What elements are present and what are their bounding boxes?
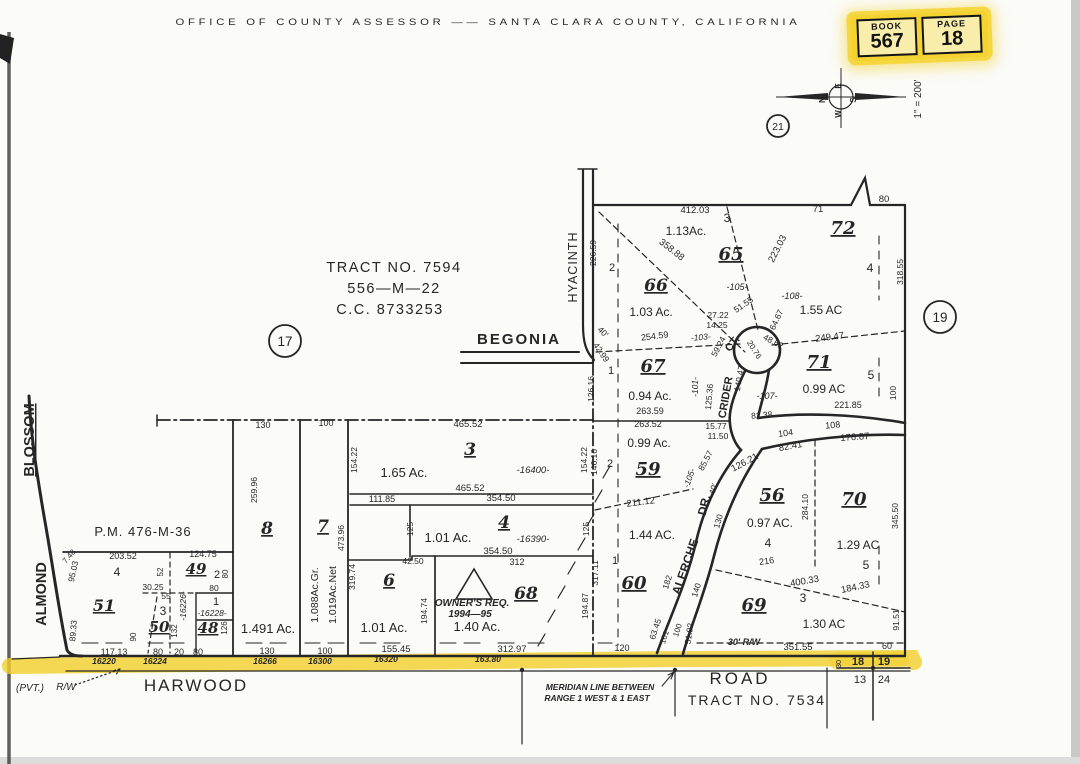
map-label: 80 bbox=[879, 194, 890, 205]
map-label: 16220 bbox=[92, 656, 116, 666]
circled-ref-label: 19 bbox=[932, 310, 947, 325]
map-label: 2 bbox=[609, 262, 615, 274]
map-label: 1.03 Ac. bbox=[629, 305, 672, 319]
map-label: MERIDIAN LINE BETWEEN bbox=[546, 682, 655, 692]
map-label: 126.21 bbox=[729, 451, 760, 474]
map-label: 203.52 bbox=[109, 551, 137, 561]
map-label: 124.75 bbox=[189, 549, 217, 559]
map-label: 51.55 bbox=[732, 294, 755, 315]
map-label: 11.50 bbox=[708, 431, 729, 441]
lot-60: 60 bbox=[621, 573, 647, 594]
map-label: 48.62 bbox=[762, 332, 786, 351]
map-label: 465.52 bbox=[453, 419, 482, 430]
lot-70: 70 bbox=[841, 489, 867, 510]
lot-56: 56 bbox=[759, 485, 785, 506]
map-label: 223.03 bbox=[766, 233, 789, 264]
lot-49: 49 bbox=[186, 560, 207, 578]
circled-ref-label: 21 bbox=[772, 121, 784, 133]
circled-ref-17: 17 bbox=[269, 325, 301, 357]
lot-7: 7 bbox=[317, 517, 329, 537]
map-label: -103- bbox=[690, 331, 711, 343]
map-label: 14.25 bbox=[706, 320, 728, 330]
map-label: 1.01 Ac. bbox=[361, 620, 408, 635]
street-harwood: HARWOOD bbox=[144, 676, 248, 695]
map-label: 2 bbox=[214, 569, 220, 581]
map-label: 465.52 bbox=[455, 483, 484, 494]
map-label: 40' bbox=[596, 324, 611, 339]
assessor-map: 171921 OFFICE OF COUNTY ASSESSOR —— SANT… bbox=[0, 0, 1080, 764]
map-label: 108 bbox=[825, 419, 841, 430]
street-hyacinth: HYACINTH bbox=[566, 232, 580, 303]
map-label: 284.10 bbox=[800, 494, 810, 520]
map-label: 473.96 bbox=[336, 525, 346, 551]
lot-51: 51 bbox=[93, 596, 115, 615]
map-label: -16226- bbox=[178, 591, 188, 620]
map-label: 263.59 bbox=[636, 406, 664, 416]
book-value: 567 bbox=[859, 30, 916, 53]
map-label: 104 bbox=[777, 427, 793, 439]
map-label: 146.16 bbox=[589, 449, 599, 475]
map-label: 1 bbox=[213, 596, 219, 608]
map-label: 354.50 bbox=[483, 546, 512, 557]
map-label: 400.33 bbox=[789, 574, 820, 590]
map-label: 1.65 Ac. bbox=[381, 465, 428, 480]
map-label: 140.47 bbox=[732, 365, 746, 393]
map-label: 42.50 bbox=[402, 556, 424, 566]
map-label: 249.47 bbox=[815, 330, 845, 344]
map-label: 120 bbox=[614, 643, 629, 653]
map-label: 259.96 bbox=[249, 477, 259, 503]
map-label: 254.59 bbox=[640, 329, 669, 342]
map-label: 154.22 bbox=[349, 447, 359, 473]
compass-n: N bbox=[818, 97, 827, 103]
circled-ref-label: 17 bbox=[277, 334, 292, 349]
map-label: C.C. 8733253 bbox=[336, 302, 443, 318]
map-label: 4 bbox=[867, 261, 874, 275]
map-label: 90 bbox=[129, 632, 138, 641]
map-label: 100 bbox=[317, 646, 332, 656]
pm-476-m-36: P.M. 476-M-36 bbox=[94, 524, 191, 539]
map-label: 263.52 bbox=[634, 419, 662, 429]
map-label: -107- bbox=[756, 391, 777, 401]
map-label: -16390- bbox=[517, 534, 550, 545]
page-cell: PAGE 18 bbox=[921, 15, 982, 55]
street-road: ROAD bbox=[709, 669, 770, 688]
lot-72: 72 bbox=[830, 218, 855, 239]
page-value: 18 bbox=[924, 28, 981, 51]
map-label: -105- bbox=[726, 282, 747, 292]
street-begonia: BEGONIA bbox=[477, 331, 561, 348]
map-label: 16300 bbox=[308, 656, 332, 666]
lot-59: 59 bbox=[635, 459, 661, 480]
lot-66: 66 bbox=[644, 276, 668, 296]
map-label: 30 bbox=[834, 660, 843, 668]
compass-w: W bbox=[834, 110, 843, 118]
compass-s: S bbox=[849, 97, 858, 103]
map-label: 1.29 AC bbox=[837, 538, 880, 552]
map-label: 163.80 bbox=[475, 654, 501, 664]
map-label: 194.74 bbox=[419, 598, 429, 624]
street-alerche-dr: DR. bbox=[695, 493, 714, 516]
map-label: 4 bbox=[114, 565, 121, 579]
map-label: 4 bbox=[765, 536, 772, 550]
circled-ref-21: 21 bbox=[767, 115, 789, 137]
map-label: 80 bbox=[193, 647, 203, 657]
map-label: 0.94 Ac. bbox=[628, 389, 671, 403]
map-label: 1 bbox=[608, 365, 614, 377]
map-label: 226.59 bbox=[588, 240, 598, 266]
book-page-stamp: BOOK 567 PAGE 18 bbox=[850, 10, 989, 61]
map-label: 358.88 bbox=[657, 237, 687, 264]
header-title: OFFICE OF COUNTY ASSESSOR —— SANTA CLARA… bbox=[176, 17, 801, 27]
map-label: 20.76 bbox=[745, 339, 764, 361]
map-label: 312 bbox=[509, 557, 524, 567]
lot-6: 6 bbox=[383, 571, 395, 591]
assessor-map-page: 171921 OFFICE OF COUNTY ASSESSOR —— SANT… bbox=[0, 0, 1080, 764]
map-label: 216 bbox=[758, 555, 774, 567]
map-label: 1.13Ac. bbox=[666, 224, 707, 238]
map-label: 20 bbox=[174, 647, 184, 657]
map-label: 91.51 bbox=[891, 609, 901, 631]
map-label: 319.74 bbox=[347, 564, 357, 590]
map-label: 0.99 Ac. bbox=[627, 436, 670, 450]
lot-68: 68 bbox=[514, 584, 538, 604]
map-label: 125 bbox=[405, 522, 415, 536]
map-label: 3 bbox=[724, 211, 731, 225]
map-label: 1.40 Ac. bbox=[454, 619, 501, 634]
map-label: 52 bbox=[156, 567, 165, 576]
lot-48: 48 bbox=[198, 619, 219, 637]
map-label: -101- bbox=[690, 377, 700, 397]
tract-7534: TRACT NO. 7534 bbox=[688, 692, 826, 708]
map-label: 100 bbox=[671, 622, 684, 638]
map-label: 82.41 bbox=[778, 439, 803, 454]
map-label: 55 bbox=[161, 591, 171, 601]
map-label: 556—M—22 bbox=[347, 281, 440, 297]
map-label: 354.50 bbox=[486, 493, 515, 504]
lot-50: 50 bbox=[149, 618, 170, 636]
map-label: OWNER'S REQ. bbox=[435, 598, 510, 609]
map-label: 1.088Ac.Gr. bbox=[309, 567, 321, 622]
map-label: 15.77 bbox=[705, 421, 727, 431]
map-label: 0.99 AC bbox=[803, 382, 846, 396]
lot-67: 67 bbox=[640, 356, 666, 377]
map-label: 194.87 bbox=[580, 593, 590, 619]
map-label: 80 bbox=[221, 569, 230, 578]
lot-4: 4 bbox=[498, 513, 510, 533]
map-label: 125 bbox=[581, 522, 591, 536]
lot-71: 71 bbox=[806, 352, 831, 373]
map-label: 221.85 bbox=[834, 400, 862, 410]
compass-rose bbox=[776, 68, 906, 128]
map-label: 5 bbox=[868, 368, 875, 382]
book-cell: BOOK 567 bbox=[856, 17, 917, 57]
map-label: 317.11 bbox=[590, 560, 600, 586]
map-label: -16400- bbox=[517, 465, 550, 476]
map-label: 1.01 Ac. bbox=[425, 530, 472, 545]
map-label: 60 bbox=[882, 641, 892, 651]
street-blossom: BLOSSOM bbox=[22, 403, 38, 476]
lot-3: 3 bbox=[464, 440, 476, 460]
map-label: 89.33 bbox=[67, 619, 79, 641]
map-label: 1 bbox=[612, 555, 618, 567]
map-label: 132 bbox=[170, 624, 179, 638]
map-label: 101 bbox=[658, 629, 671, 645]
map-label: 13 bbox=[854, 674, 866, 686]
map-label: 126.16 bbox=[586, 376, 596, 402]
map-label: 19 bbox=[878, 656, 890, 668]
map-label: 1.44 AC. bbox=[629, 528, 675, 542]
lot-65: 65 bbox=[718, 244, 743, 265]
map-label: 27.22 bbox=[707, 310, 729, 320]
map-label: 30' R/W bbox=[728, 637, 762, 647]
scale-label: 1" = 200' bbox=[913, 79, 924, 118]
map-label: 345.50 bbox=[890, 503, 900, 529]
map-label: 1.019Ac.Net bbox=[327, 566, 339, 624]
circled-ref-19: 19 bbox=[924, 301, 956, 333]
lot-69: 69 bbox=[741, 595, 767, 616]
map-label: 5 bbox=[863, 558, 870, 572]
map-label: 130 bbox=[259, 646, 274, 656]
map-label: 130 bbox=[255, 420, 270, 430]
map-label: 16224 bbox=[143, 656, 167, 666]
map-label: 176.87 bbox=[840, 431, 870, 444]
map-label: 184.33 bbox=[840, 579, 871, 596]
map-label: 1.491 Ac. bbox=[241, 621, 295, 636]
map-label: 312.97 bbox=[497, 644, 526, 655]
street-almond: ALMOND bbox=[34, 562, 50, 626]
compass-e: E bbox=[834, 83, 843, 89]
map-label: 64.67 bbox=[767, 308, 785, 332]
map-label: 81.38 bbox=[751, 409, 773, 421]
map-label: 125.36 bbox=[703, 383, 715, 410]
map-label: 100 bbox=[888, 386, 898, 400]
map-label: 16266 bbox=[253, 656, 277, 666]
map-label: -108- bbox=[781, 291, 802, 301]
map-label: 1.30 AC bbox=[803, 617, 846, 631]
map-label: (PVT.) bbox=[16, 683, 44, 694]
map-label: 318.55 bbox=[895, 259, 905, 285]
map-label: 2 bbox=[607, 458, 613, 470]
tract-7594: TRACT NO. 7594 bbox=[326, 260, 461, 276]
map-label: 211.12 bbox=[626, 495, 655, 509]
map-label: 3 bbox=[800, 591, 807, 605]
map-label: 71 bbox=[813, 204, 824, 215]
map-label: -16228- bbox=[197, 608, 226, 618]
lot-8: 8 bbox=[260, 519, 273, 539]
map-label: 126 bbox=[220, 621, 229, 635]
map-label: RANGE 1 WEST & 1 EAST bbox=[544, 693, 650, 703]
map-label: 0.97 AC. bbox=[747, 516, 793, 530]
map-label: 16320 bbox=[374, 654, 398, 664]
map-label: 18 bbox=[852, 656, 864, 668]
map-label: 412.03 bbox=[680, 205, 709, 216]
map-label: 100 bbox=[318, 418, 333, 428]
map-label: 1.55 AC bbox=[800, 303, 843, 317]
map-label: R/W bbox=[56, 682, 77, 693]
map-label: 51.92 bbox=[683, 622, 696, 645]
map-label: 154.22 bbox=[579, 447, 589, 473]
map-label: 3 bbox=[160, 604, 167, 618]
map-label: 80 bbox=[209, 583, 219, 593]
map-label: 351.55 bbox=[783, 642, 812, 653]
map-label: -105- bbox=[681, 467, 697, 489]
map-label: 24 bbox=[878, 674, 890, 686]
map-label: 111.85 bbox=[369, 494, 395, 504]
map-label: 85.57 bbox=[696, 449, 715, 473]
